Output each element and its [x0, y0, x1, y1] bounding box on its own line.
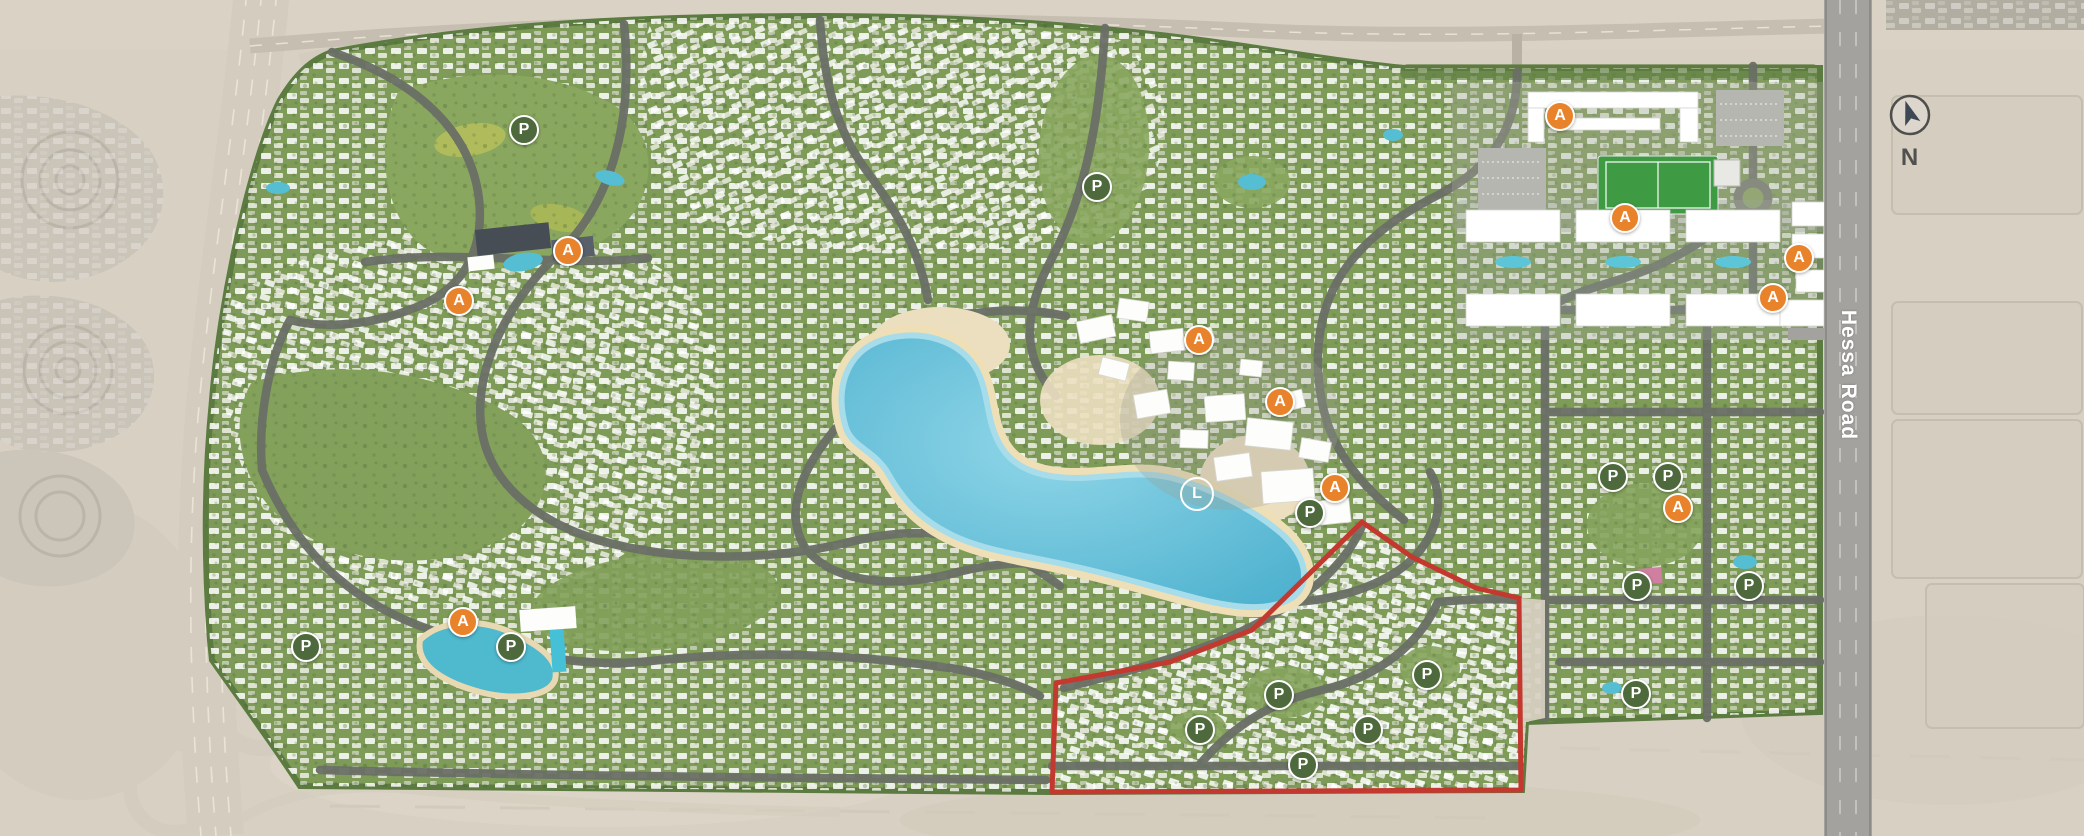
- amenity-marker[interactable]: A: [1758, 283, 1788, 313]
- park-marker[interactable]: P: [291, 632, 321, 662]
- amenity-marker[interactable]: A: [1610, 203, 1640, 233]
- park-marker[interactable]: P: [509, 115, 539, 145]
- amenity-marker[interactable]: A: [1320, 473, 1350, 503]
- clubhouse-southwest: [519, 606, 576, 632]
- park-marker[interactable]: P: [1295, 498, 1325, 528]
- compass: N: [1888, 93, 1932, 172]
- park-marker[interactable]: P: [1353, 715, 1383, 745]
- compass-north-icon: [1888, 93, 1932, 137]
- amenity-marker[interactable]: A: [444, 286, 474, 316]
- park-marker[interactable]: P: [1082, 172, 1112, 202]
- amenity-marker[interactable]: A: [1184, 325, 1214, 355]
- park-marker[interactable]: P: [1653, 462, 1683, 492]
- lagoon-marker[interactable]: L: [1180, 477, 1214, 511]
- amenity-marker[interactable]: A: [1663, 493, 1693, 523]
- masterplan-map: [0, 0, 2084, 836]
- park-marker[interactable]: P: [1622, 571, 1652, 601]
- masterplan-screenshot: Hessa Road N AAAAAAAAAAAPPPPPPPPPPPPPPPL: [0, 0, 2084, 836]
- amenity-marker[interactable]: A: [448, 607, 478, 637]
- amenity-marker[interactable]: A: [1784, 243, 1814, 273]
- park-marker[interactable]: P: [496, 632, 526, 662]
- park-marker[interactable]: P: [1264, 680, 1294, 710]
- park-marker[interactable]: P: [1621, 679, 1651, 709]
- park-marker[interactable]: P: [1734, 571, 1764, 601]
- road-label-hessa: Hessa Road: [1836, 310, 1860, 440]
- park-marker[interactable]: P: [1598, 462, 1628, 492]
- compass-north-label: N: [1888, 144, 1932, 172]
- amenity-marker[interactable]: A: [1545, 101, 1575, 131]
- park-marker[interactable]: P: [1412, 660, 1442, 690]
- park-marker[interactable]: P: [1185, 715, 1215, 745]
- park-marker[interactable]: P: [1288, 750, 1318, 780]
- amenity-marker[interactable]: A: [553, 236, 583, 266]
- amenity-marker[interactable]: A: [1265, 387, 1295, 417]
